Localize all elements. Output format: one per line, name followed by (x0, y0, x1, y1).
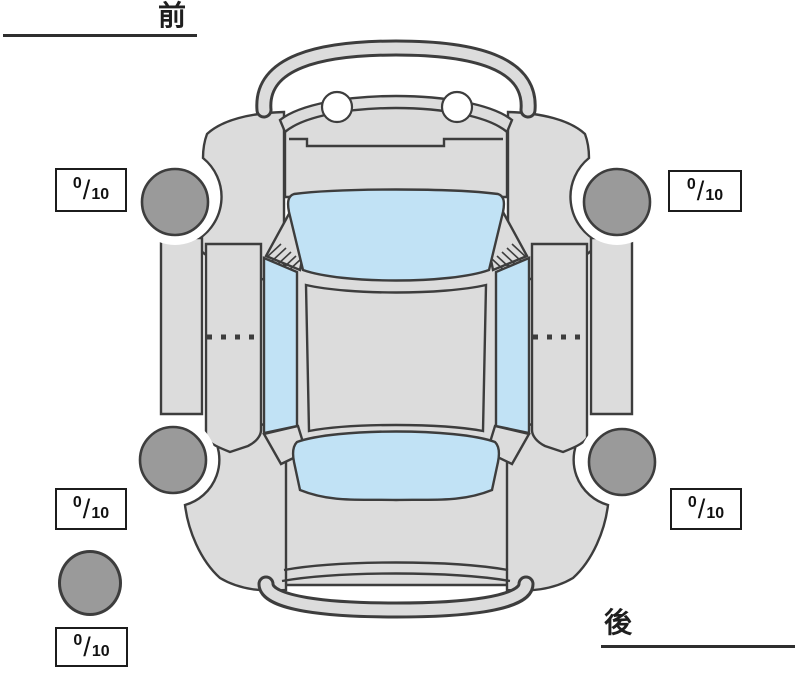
tread-score-rear-left: 0 / 10 (55, 488, 127, 530)
tread-value: 0 (73, 632, 82, 650)
tread-separator: / (83, 494, 91, 525)
tread-max: 10 (706, 505, 724, 523)
tread-max: 10 (705, 187, 723, 205)
tread-score-front-left: 0 / 10 (55, 168, 127, 212)
tread-max: 10 (91, 186, 109, 204)
windshield (288, 190, 504, 281)
tread-score-front-right: 0 / 10 (668, 170, 742, 212)
side-window-left (264, 258, 297, 433)
tread-score-rear-right: 0 / 10 (670, 488, 742, 530)
side-window-right (496, 258, 529, 433)
spare-tire (58, 550, 122, 616)
roof-panel (306, 285, 486, 431)
tread-value: 0 (688, 494, 697, 512)
vehicle-inspection-diagram: 前 後 (0, 0, 800, 675)
door-panel-left (206, 244, 261, 452)
tread-separator: / (698, 494, 706, 525)
tread-value: 0 (687, 176, 696, 194)
tire-rear-right (589, 429, 655, 495)
rocker-panel-left (161, 238, 202, 414)
hood-panel (285, 107, 507, 197)
tread-separator: / (697, 176, 705, 207)
tread-value: 0 (73, 494, 82, 512)
tread-score-spare: 0 / 10 (55, 627, 128, 667)
rear-window (293, 432, 499, 501)
headlight-left (322, 92, 352, 122)
door-panel-right (532, 244, 587, 452)
tread-separator: / (83, 175, 91, 206)
rocker-panel-right (591, 238, 632, 414)
tire-front-left (142, 169, 208, 235)
tire-front-right (584, 169, 650, 235)
headlight-right (442, 92, 472, 122)
tire-rear-left (140, 427, 206, 493)
tread-separator: / (83, 632, 91, 663)
tread-max: 10 (91, 505, 109, 523)
rear-bumper (266, 584, 526, 610)
tread-max: 10 (92, 643, 110, 661)
tread-value: 0 (73, 175, 82, 193)
